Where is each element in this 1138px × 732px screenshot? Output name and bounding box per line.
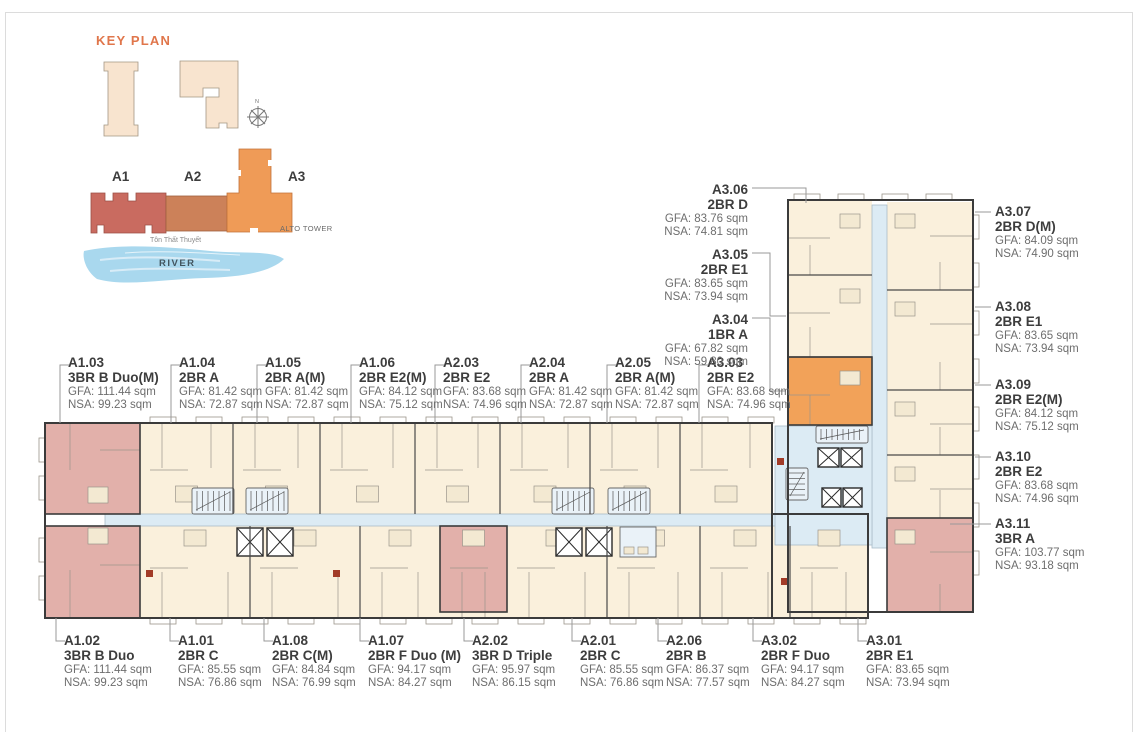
unit-callout-a3-07: A3.072BR D(M)GFA: 84.09 sqmNSA: 74.90 sq… [995,205,1119,261]
utility-shaft [781,578,788,585]
unit-id: A3.06 [616,183,748,197]
unit-gfa: GFA: 83.65 sqm [866,664,990,677]
utility-shaft [146,570,153,577]
unit-gfa: GFA: 111.44 sqm [64,664,188,677]
unit-callout-a3-01: A3.012BR E1GFA: 83.65 sqmNSA: 73.94 sqm [866,634,990,690]
keyplan-block-a1-shape [91,193,166,233]
unit-type: 1BR A [616,327,748,342]
unit-nsa: NSA: 86.15 sqm [472,677,596,690]
unit-id: A1.03 [68,356,192,370]
unit-callout-a3-04: A3.041BR AGFA: 67.82 sqmNSA: 59.80 sqm [616,313,748,369]
unit-callout-a1-03: A1.033BR B Duo(M)GFA: 111.44 sqmNSA: 99.… [68,356,192,412]
unit-nsa: NSA: 93.18 sqm [995,560,1119,573]
unit-nsa: NSA: 74.96 sqm [995,493,1119,506]
unit-id: A3.11 [995,517,1119,531]
unit-id: A3.01 [866,634,990,648]
river-label: RIVER [159,258,196,269]
keyplan-title: KEY PLAN [96,33,171,48]
utility-shaft [333,570,340,577]
unit-type: 3BR A [995,531,1119,546]
unit-id: A3.10 [995,450,1119,464]
unit-type: 3BR B Duo [64,648,188,663]
compass-icon: N [247,99,269,128]
keyplan-label-a3: A3 [288,169,305,184]
unit-nsa: NSA: 73.94 sqm [616,291,748,304]
keyplan-label-a1: A1 [112,169,129,184]
keyplan-label-a2: A2 [184,169,201,184]
utility-shaft [777,458,784,465]
unit-id: A3.04 [616,313,748,327]
tower-name-label: ALTO TOWER [280,224,333,233]
unit-gfa: GFA: 103.77 sqm [995,547,1119,560]
unit-callout-a3-09: A3.092BR E2(M)GFA: 84.12 sqmNSA: 75.12 s… [995,378,1119,434]
unit-nsa: NSA: 73.94 sqm [866,677,990,690]
unit-type: 3BR B Duo(M) [68,370,192,385]
unit-callout-a2-02: A2.023BR D TripleGFA: 95.97 sqmNSA: 86.1… [472,634,596,690]
unit-nsa: NSA: 59.80 sqm [616,356,748,369]
unit-gfa: GFA: 111.44 sqm [68,386,192,399]
unit-gfa: GFA: 84.12 sqm [995,408,1119,421]
unit-gfa: GFA: 83.68 sqm [995,480,1119,493]
floorplan-page: N [0,0,1138,732]
keyplan-block-a2-shape [166,196,227,231]
unit-id: A3.07 [995,205,1119,219]
unit-nsa: NSA: 75.12 sqm [995,421,1119,434]
unit-type: 2BR D [616,197,748,212]
main-corridor [105,514,880,526]
unit-gfa: GFA: 84.09 sqm [995,235,1119,248]
unit-id: A3.05 [616,248,748,262]
unit-gfa: GFA: 83.68 sqm [707,386,831,399]
svg-text:N: N [255,99,259,105]
unit-gfa: GFA: 95.97 sqm [472,664,596,677]
unit-id: A3.09 [995,378,1119,392]
unit-callout-a1-02: A1.023BR B DuoGFA: 111.44 sqmNSA: 99.23 … [64,634,188,690]
unit-id: A3.08 [995,300,1119,314]
unit-nsa: NSA: 74.96 sqm [707,399,831,412]
unit-gfa: GFA: 67.82 sqm [616,343,748,356]
unit-id: A2.02 [472,634,596,648]
unit-nsa: NSA: 74.81 sqm [616,226,748,239]
unit-gfa: GFA: 83.65 sqm [995,330,1119,343]
unit-type: 2BR E2(M) [995,392,1119,407]
unit-nsa: NSA: 99.23 sqm [68,399,192,412]
unit-type: 2BR E2 [707,370,831,385]
unit-callout-a3-10: A3.102BR E2GFA: 83.68 sqmNSA: 74.96 sqm [995,450,1119,506]
unit-nsa: NSA: 74.90 sqm [995,248,1119,261]
keyplan-building-north-2 [180,61,238,128]
unit-type: 2BR E1 [616,262,748,277]
unit-gfa: GFA: 83.65 sqm [616,278,748,291]
unit-nsa: NSA: 99.23 sqm [64,677,188,690]
unit-type: 2BR D(M) [995,219,1119,234]
keyplan-building-north-1 [104,62,138,136]
unit-callout-a3-11: A3.113BR AGFA: 103.77 sqmNSA: 93.18 sqm [995,517,1119,573]
unit-type: 2BR E1 [866,648,990,663]
street-name-label: Tôn Thất Thuyết [150,237,201,244]
unit-type: 3BR D Triple [472,648,596,663]
unit-callout-a3-06: A3.062BR DGFA: 83.76 sqmNSA: 74.81 sqm [616,183,748,239]
unit-id: A1.02 [64,634,188,648]
unit-type: 2BR E2 [995,464,1119,479]
unit-gfa: GFA: 83.76 sqm [616,213,748,226]
unit-nsa: NSA: 73.94 sqm [995,343,1119,356]
unit-callout-a3-08: A3.082BR E1GFA: 83.65 sqmNSA: 73.94 sqm [995,300,1119,356]
keyplan-block-a3-shape [227,149,292,232]
wing-corridor [872,205,887,548]
unit-type: 2BR E1 [995,314,1119,329]
unit-callout-a3-05: A3.052BR E1GFA: 83.65 sqmNSA: 73.94 sqm [616,248,748,304]
